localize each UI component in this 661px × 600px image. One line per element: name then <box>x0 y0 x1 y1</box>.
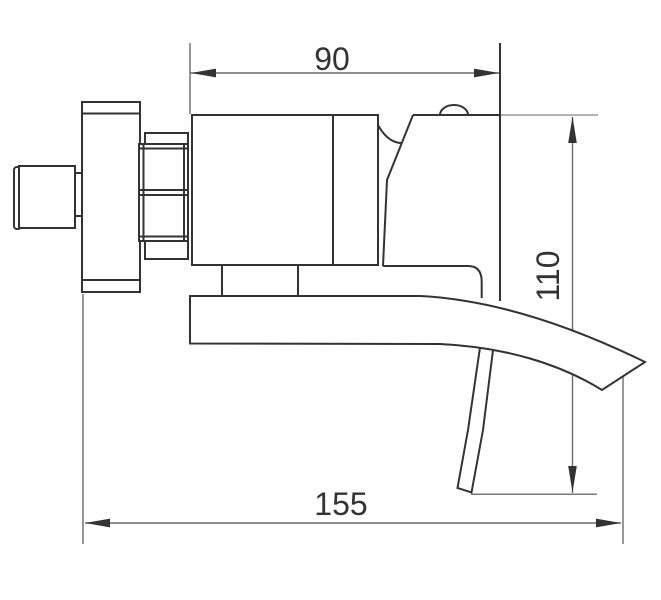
wall-plate-body <box>82 102 140 292</box>
knob-body <box>19 166 75 228</box>
mounting-nut-body <box>139 144 188 241</box>
dim-90-label: 90 <box>314 41 350 77</box>
dim-155-label: 155 <box>314 486 367 522</box>
spout <box>190 296 645 390</box>
wall-knob <box>14 166 83 229</box>
spout-mount-shoulder <box>383 266 482 298</box>
wall-plate <box>82 102 140 292</box>
arrow-left-icon <box>85 519 110 528</box>
arrow-up-icon <box>568 117 577 144</box>
mounting-nut <box>139 144 188 241</box>
pedestal <box>222 265 298 295</box>
arrow-right-icon <box>596 519 621 528</box>
handle-bump <box>440 105 468 115</box>
supply-pipe-lower <box>145 240 188 259</box>
valve-body-main-section <box>192 115 333 265</box>
valve-body <box>192 115 378 265</box>
lever-handle <box>458 344 494 493</box>
cartridge-collar-curve <box>378 125 402 143</box>
arrow-left-icon <box>191 69 216 78</box>
dim-110-label: 110 <box>530 250 566 301</box>
arrow-down-icon <box>568 466 577 493</box>
valve-body-front-section <box>333 115 378 265</box>
technical-drawing-page: 90 110 155 <box>0 0 661 600</box>
technical-drawing-canvas: 90 110 155 <box>0 0 661 600</box>
arrow-right-icon <box>474 69 499 78</box>
handle <box>378 43 500 301</box>
dimension-90-group: 90 <box>190 41 500 114</box>
